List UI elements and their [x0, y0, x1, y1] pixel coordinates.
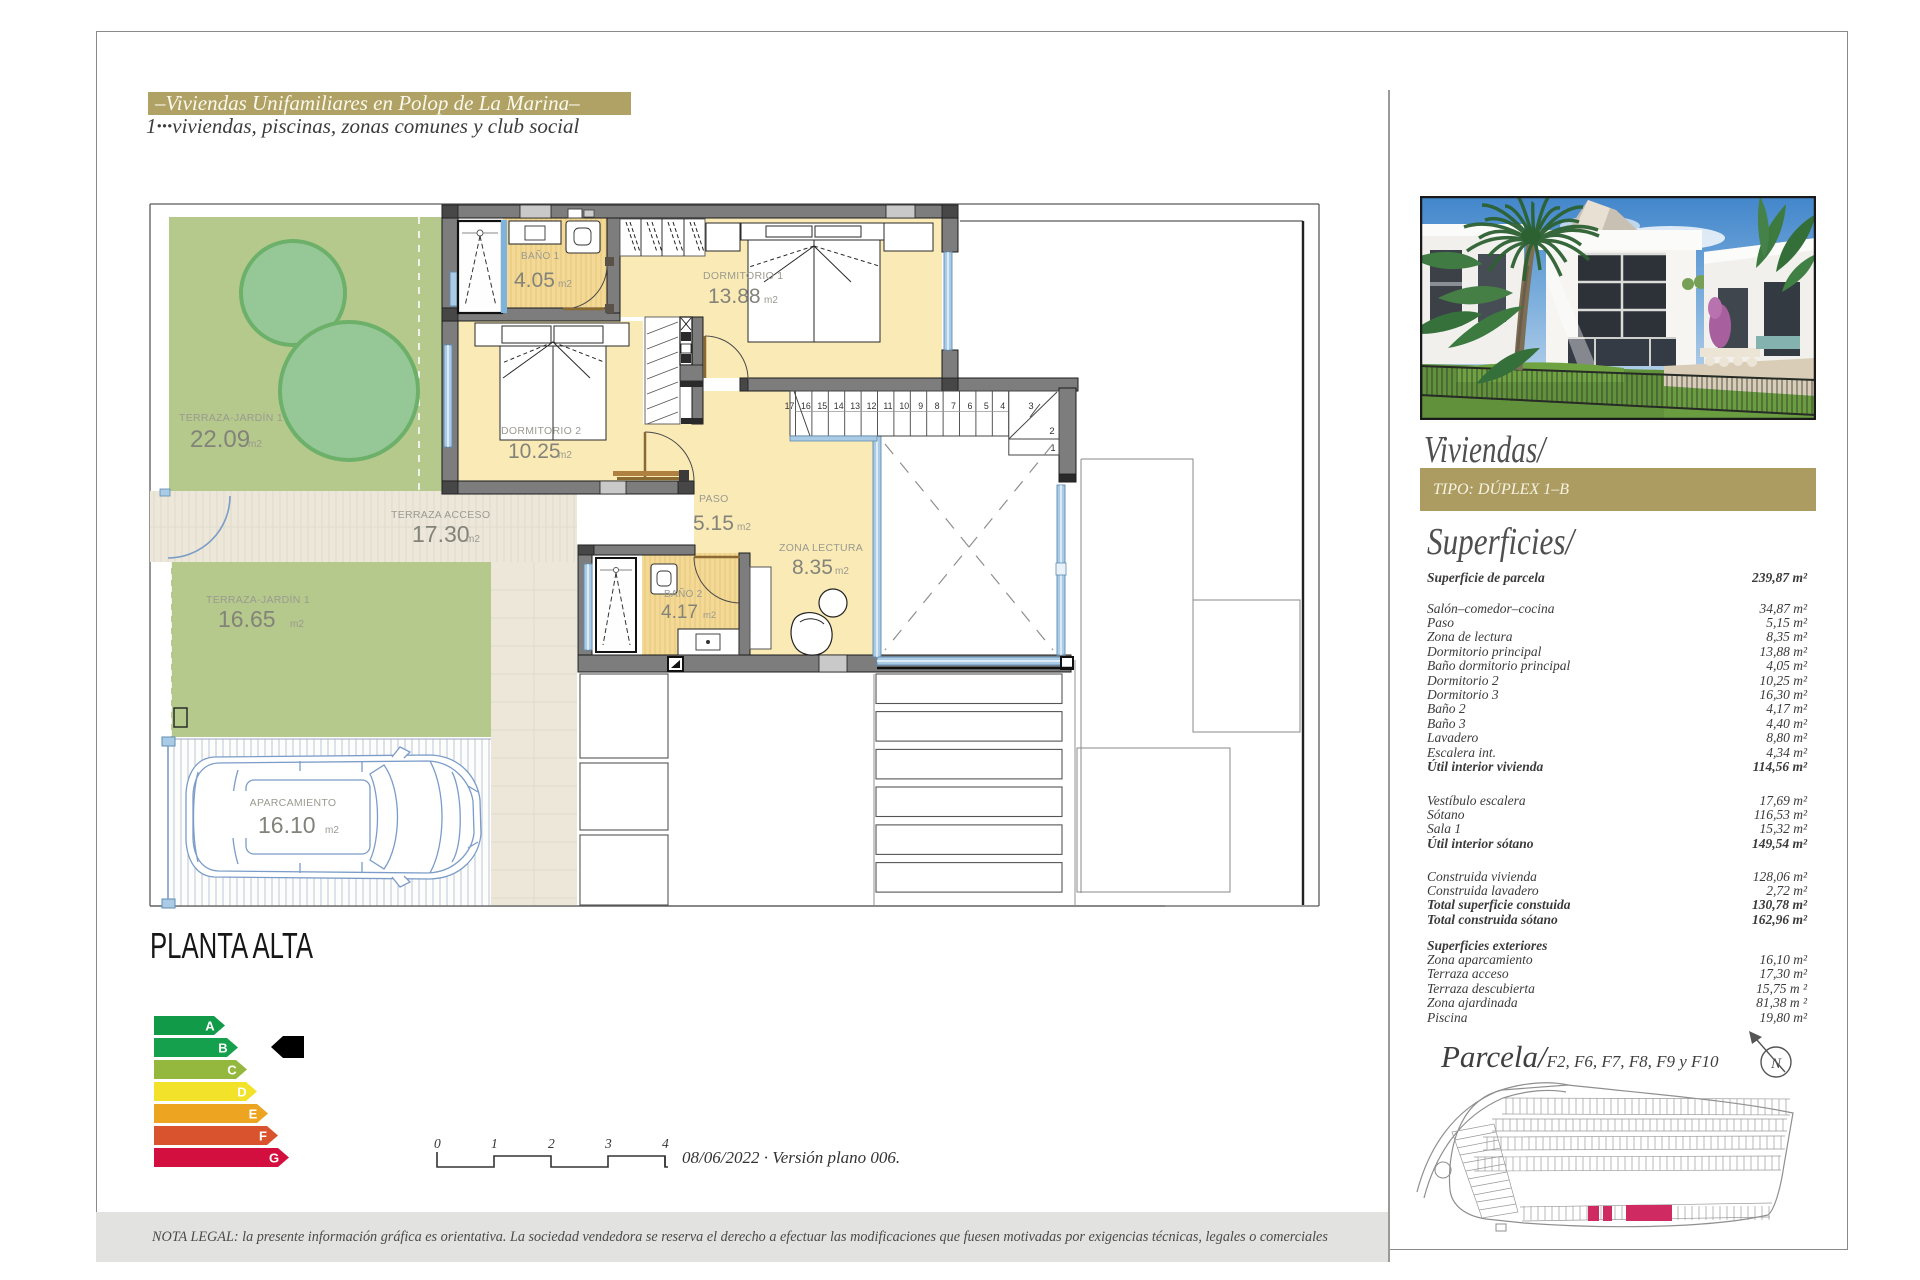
svg-text:12: 12	[867, 401, 877, 411]
svg-text:5.15: 5.15	[693, 512, 734, 535]
svg-text:TERRAZA-JARDÍN 1: TERRAZA-JARDÍN 1	[206, 593, 310, 606]
svg-text:APARCAMIENTO: APARCAMIENTO	[250, 797, 337, 809]
svg-text:B: B	[218, 1041, 227, 1056]
svg-text:2: 2	[1049, 426, 1054, 437]
svg-text:m2: m2	[835, 566, 849, 577]
svg-text:4: 4	[1000, 401, 1005, 411]
svg-text:N: N	[1770, 1056, 1782, 1072]
svg-text:m2: m2	[325, 825, 339, 836]
svg-text:4.17: 4.17	[661, 602, 698, 623]
svg-text:8.35: 8.35	[792, 556, 833, 579]
svg-text:0: 0	[434, 1136, 441, 1151]
svg-text:22.09: 22.09	[190, 426, 250, 453]
svg-text:m2: m2	[290, 619, 304, 630]
svg-text:m2: m2	[764, 295, 778, 306]
svg-text:10: 10	[899, 401, 909, 411]
svg-text:4.05: 4.05	[514, 269, 555, 292]
svg-text:F: F	[259, 1129, 267, 1144]
svg-text:TERRAZA-JARDÍN 1: TERRAZA-JARDÍN 1	[179, 411, 283, 424]
svg-text:BAÑO 1: BAÑO 1	[521, 249, 560, 262]
svg-text:DORMITORIO 2: DORMITORIO 2	[501, 425, 581, 437]
svg-text:7: 7	[951, 401, 956, 411]
svg-text:ZONA LECTURA: ZONA LECTURA	[779, 542, 863, 554]
svg-text:16: 16	[801, 401, 811, 411]
svg-text:1: 1	[491, 1136, 498, 1151]
svg-text:DORMITORIO 1: DORMITORIO 1	[703, 270, 783, 282]
svg-text:11: 11	[883, 401, 892, 411]
svg-text:5: 5	[984, 401, 989, 411]
svg-text:PASO: PASO	[699, 493, 729, 505]
svg-text:9: 9	[918, 401, 923, 411]
svg-text:A: A	[205, 1019, 215, 1034]
svg-text:15: 15	[817, 401, 827, 411]
svg-text:m2: m2	[466, 534, 480, 545]
svg-text:m2: m2	[558, 279, 572, 290]
svg-text:3: 3	[604, 1136, 612, 1151]
svg-text:D: D	[237, 1085, 246, 1100]
svg-text:2: 2	[548, 1136, 555, 1151]
svg-text:13: 13	[850, 401, 860, 411]
svg-text:m2: m2	[703, 610, 716, 621]
svg-text:16.10: 16.10	[258, 812, 316, 838]
svg-text:m2: m2	[248, 439, 262, 450]
svg-text:17.30: 17.30	[412, 521, 470, 547]
svg-text:m2: m2	[737, 522, 751, 533]
svg-text:6: 6	[967, 401, 972, 411]
svg-text:16.65: 16.65	[218, 606, 276, 632]
svg-text:TERRAZA ACCESO: TERRAZA ACCESO	[391, 509, 490, 521]
svg-text:BAÑO 2: BAÑO 2	[664, 587, 703, 600]
svg-text:13.88: 13.88	[708, 285, 761, 308]
svg-text:14: 14	[834, 401, 844, 411]
svg-text:m2: m2	[558, 450, 572, 461]
svg-text:08/06/2022 · Versión plano 006: 08/06/2022 · Versión plano 006.	[682, 1148, 900, 1167]
svg-text:E: E	[249, 1107, 258, 1122]
svg-text:8: 8	[935, 401, 940, 411]
svg-text:PLANTA ALTA: PLANTA ALTA	[150, 925, 313, 966]
svg-text:3: 3	[1028, 401, 1033, 412]
svg-text:C: C	[227, 1063, 237, 1078]
svg-text:10.25: 10.25	[508, 440, 561, 463]
svg-text:G: G	[269, 1151, 279, 1166]
svg-text:17: 17	[785, 401, 795, 411]
svg-text:4: 4	[662, 1136, 669, 1151]
